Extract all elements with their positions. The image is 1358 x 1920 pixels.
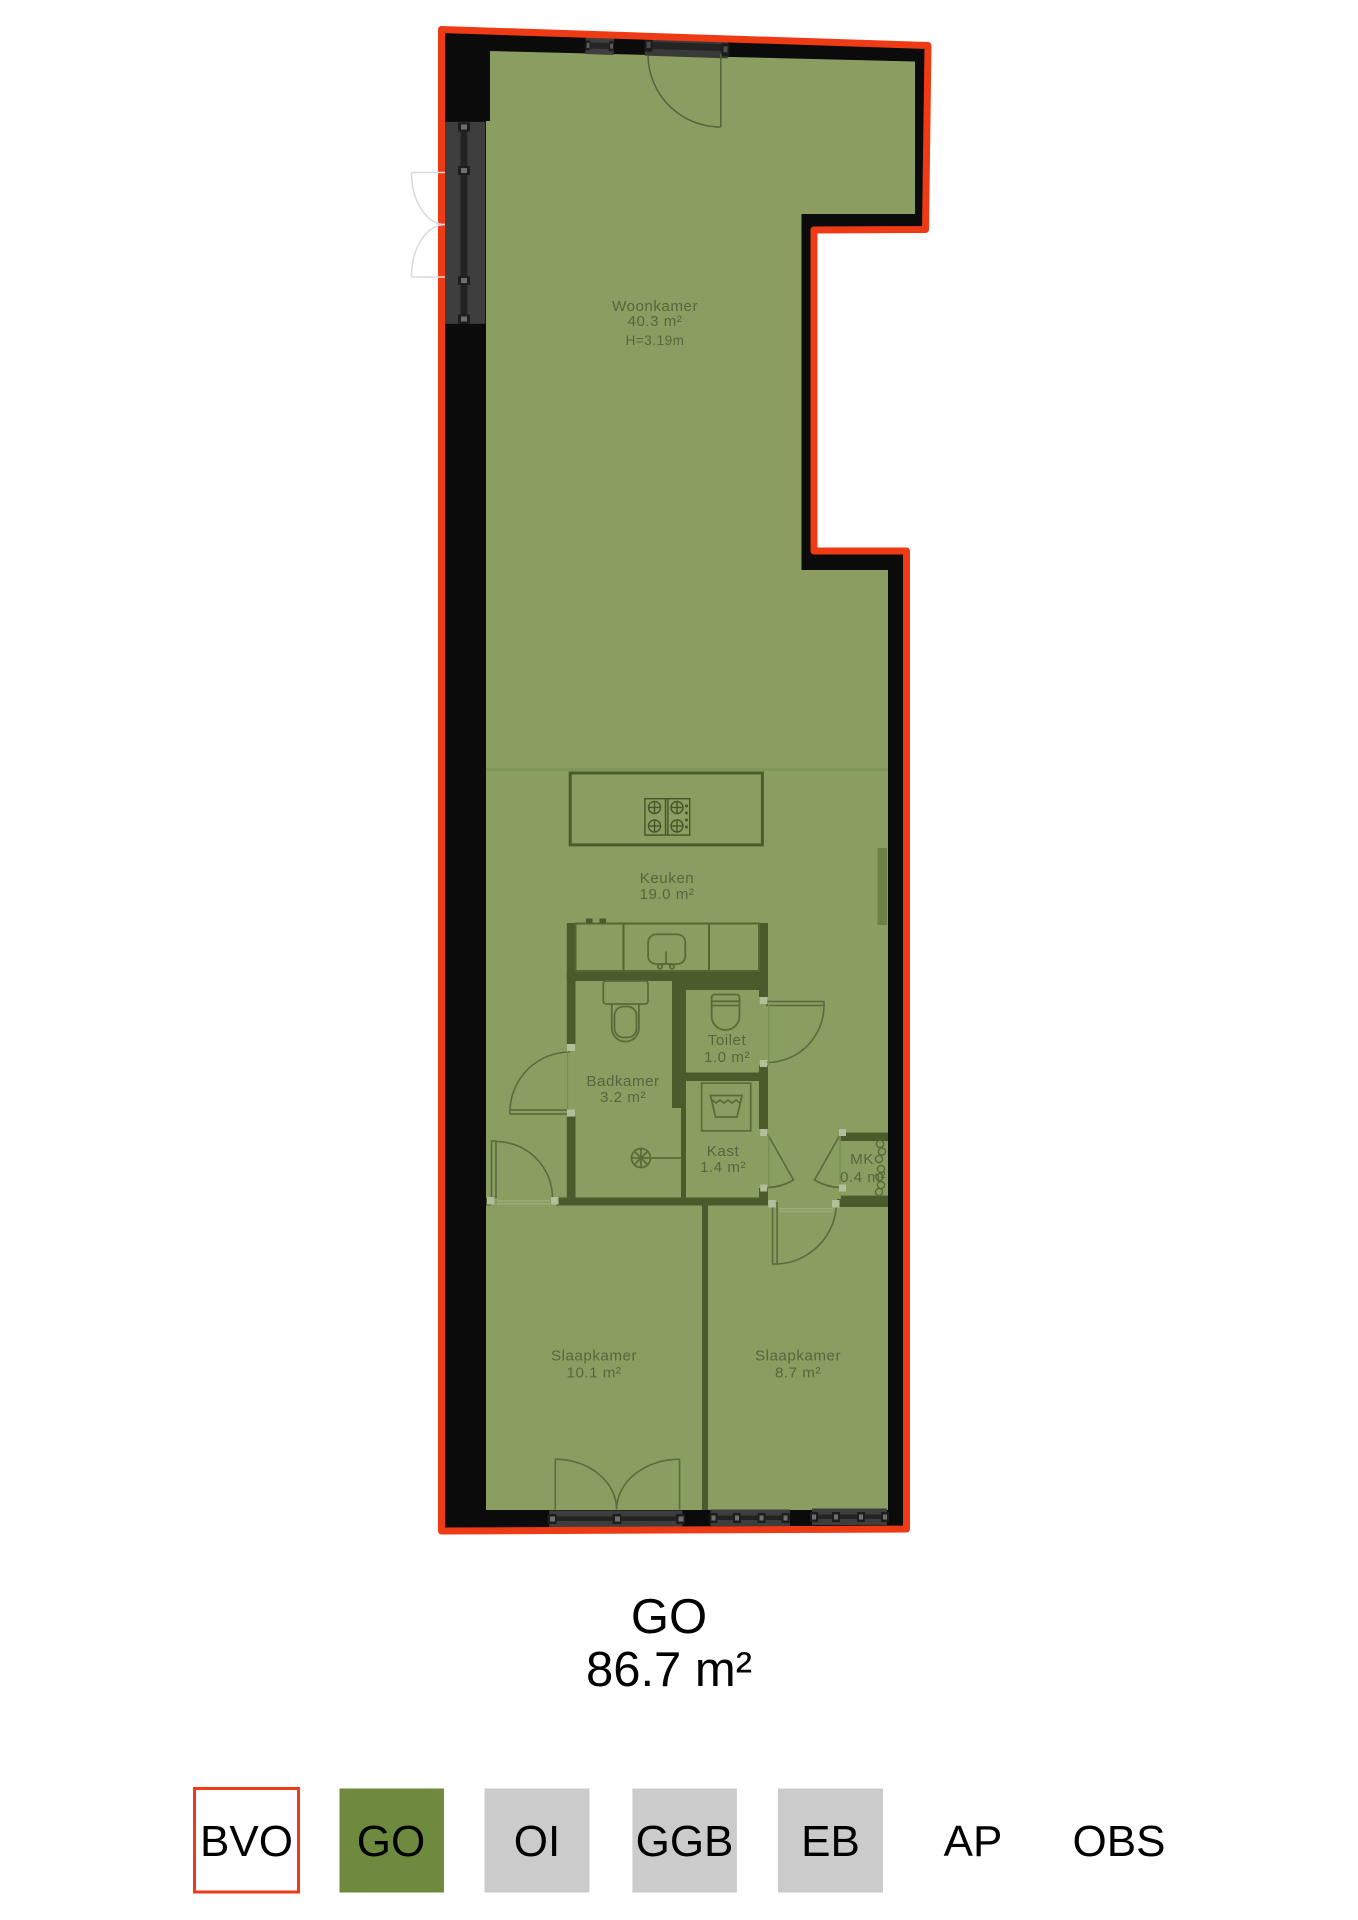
svg-text:0.4 m²: 0.4 m² <box>840 1169 886 1186</box>
svg-text:GO: GO <box>357 1817 425 1866</box>
svg-text:3.2 m²: 3.2 m² <box>600 1089 646 1106</box>
svg-text:8.7 m²: 8.7 m² <box>775 1365 821 1382</box>
svg-text:BVO: BVO <box>200 1817 293 1866</box>
svg-text:GO: GO <box>631 1590 707 1644</box>
svg-text:Kast: Kast <box>707 1143 740 1160</box>
svg-text:H=3.19m: H=3.19m <box>626 333 685 348</box>
svg-text:Toilet: Toilet <box>708 1032 747 1049</box>
svg-text:Slaapkamer: Slaapkamer <box>551 1348 637 1365</box>
svg-text:Slaapkamer: Slaapkamer <box>755 1348 841 1365</box>
svg-text:OBS: OBS <box>1073 1817 1166 1866</box>
svg-text:10.1 m²: 10.1 m² <box>567 1365 622 1382</box>
svg-text:19.0 m²: 19.0 m² <box>640 886 695 903</box>
svg-text:OI: OI <box>514 1817 560 1866</box>
svg-text:AP: AP <box>944 1817 1003 1866</box>
svg-text:86.7 m²: 86.7 m² <box>586 1643 752 1697</box>
svg-text:GGB: GGB <box>636 1817 734 1866</box>
svg-text:1.0 m²: 1.0 m² <box>704 1049 750 1066</box>
svg-text:Keuken: Keuken <box>640 870 695 887</box>
svg-text:1.4 m²: 1.4 m² <box>700 1159 746 1176</box>
svg-text:40.3 m²: 40.3 m² <box>628 313 683 330</box>
svg-text:EB: EB <box>801 1817 860 1866</box>
svg-text:Badkamer: Badkamer <box>586 1073 659 1090</box>
svg-text:MK: MK <box>850 1151 874 1168</box>
